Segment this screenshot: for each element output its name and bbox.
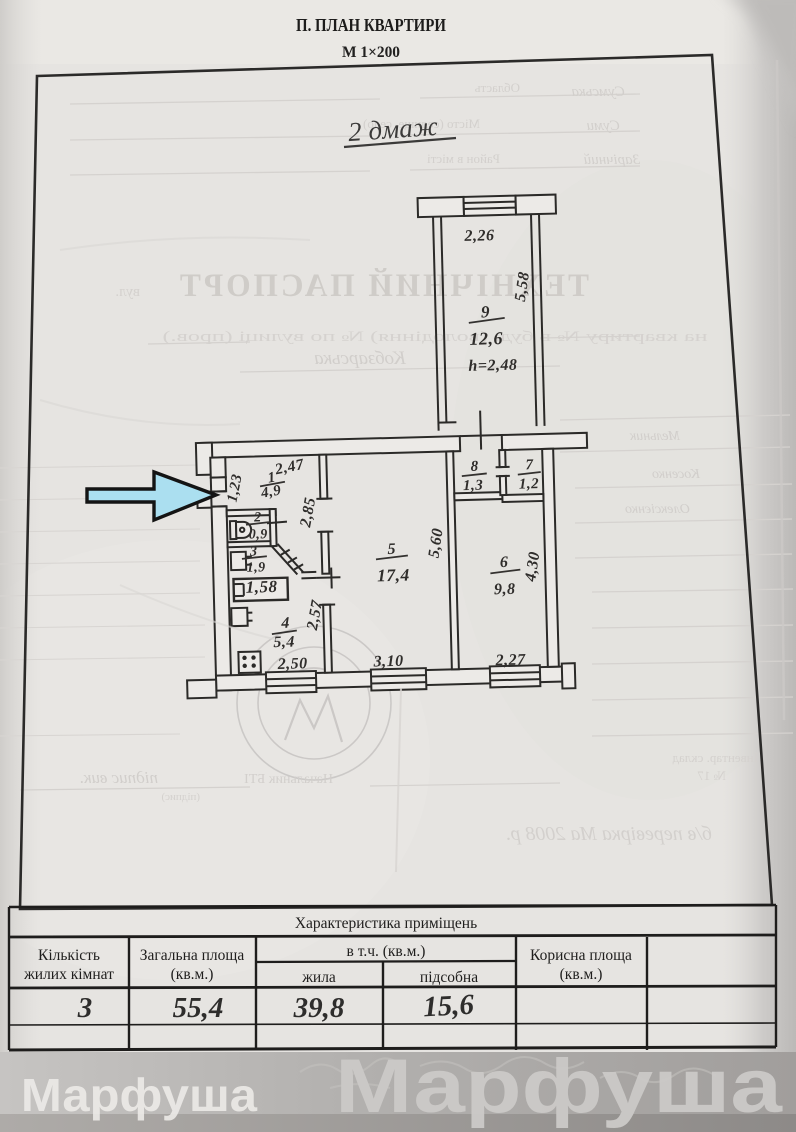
svg-text:Інвентар. склад: Інвентар. склад — [672, 750, 758, 765]
svg-text:№ 17: № 17 — [697, 768, 726, 783]
svg-text:П. ПЛАН КВАРТИРИ: П. ПЛАН КВАРТИРИ — [296, 15, 446, 35]
svg-text:Олексієнко: Олексієнко — [625, 502, 690, 517]
svg-text:жилих кімнат: жилих кімнат — [23, 966, 114, 983]
svg-text:в т.ч. (кв.м.): в т.ч. (кв.м.) — [347, 943, 426, 960]
svg-text:1,58: 1,58 — [246, 577, 278, 597]
svg-text:5: 5 — [387, 541, 396, 558]
svg-text:Суми: Суми — [587, 118, 620, 134]
svg-text:Область: Область — [475, 80, 520, 95]
svg-text:3,10: 3,10 — [372, 653, 403, 671]
svg-text:15,6: 15,6 — [422, 989, 475, 1024]
svg-text:6: 6 — [500, 554, 509, 571]
svg-text:Кобзарська: Кобзарська — [314, 348, 407, 369]
svg-text:Район в місті: Район в місті — [427, 151, 500, 166]
svg-text:Марфуша: Марфуша — [21, 1069, 257, 1121]
svg-text:8: 8 — [470, 459, 478, 475]
svg-text:Корисна площа: Корисна площа — [530, 947, 632, 964]
svg-text:12,6: 12,6 — [469, 328, 503, 349]
svg-text:підпис вик.: підпис вик. — [79, 768, 158, 787]
svg-text:підсобна: підсобна — [420, 969, 478, 986]
svg-text:9,8: 9,8 — [494, 581, 516, 599]
svg-text:Загальна площа: Загальна площа — [140, 947, 245, 964]
svg-text:7: 7 — [525, 457, 533, 473]
svg-text:1,3: 1,3 — [463, 478, 484, 495]
svg-text:h=2,48: h=2,48 — [468, 357, 517, 375]
svg-text:б/в перевірка Ма 2008 р.: б/в перевірка Ма 2008 р. — [505, 823, 712, 845]
svg-text:0,9: 0,9 — [249, 527, 268, 542]
svg-text:55,4: 55,4 — [173, 992, 224, 1024]
svg-text:Сумська: Сумська — [572, 84, 626, 100]
svg-text:жила: жила — [301, 969, 336, 986]
svg-text:2,50: 2,50 — [276, 655, 307, 673]
svg-text:(кв.м.): (кв.м.) — [171, 966, 214, 983]
svg-text:17,4: 17,4 — [377, 564, 410, 585]
svg-text:1,9: 1,9 — [246, 560, 265, 575]
svg-text:вул.: вул. — [115, 284, 140, 300]
svg-text:Характеристика приміщень: Характеристика приміщень — [295, 915, 477, 932]
svg-text:1,2: 1,2 — [519, 476, 540, 493]
svg-text:Мельник: Мельник — [629, 429, 681, 444]
svg-text:9: 9 — [481, 302, 490, 321]
svg-text:(кв.м.): (кв.м.) — [560, 966, 603, 983]
svg-text:Косенко: Косенко — [652, 467, 701, 482]
svg-text:(підпис): (підпис) — [161, 791, 200, 803]
svg-text:М 1×200: М 1×200 — [342, 44, 400, 61]
svg-text:4: 4 — [280, 615, 290, 632]
svg-text:Марфуша: Марфуша — [335, 1044, 783, 1129]
svg-text:39,8: 39,8 — [293, 992, 345, 1024]
svg-text:Зарічний: Зарічний — [583, 152, 640, 168]
svg-text:Кількість: Кількість — [38, 947, 100, 964]
svg-text:2,26: 2,26 — [463, 227, 494, 245]
svg-text:Начальник БТІ: Начальник БТІ — [244, 772, 333, 787]
svg-text:2 дмаж: 2 дмаж — [347, 111, 439, 147]
svg-text:3: 3 — [77, 992, 93, 1024]
svg-text:2,27: 2,27 — [494, 651, 526, 669]
